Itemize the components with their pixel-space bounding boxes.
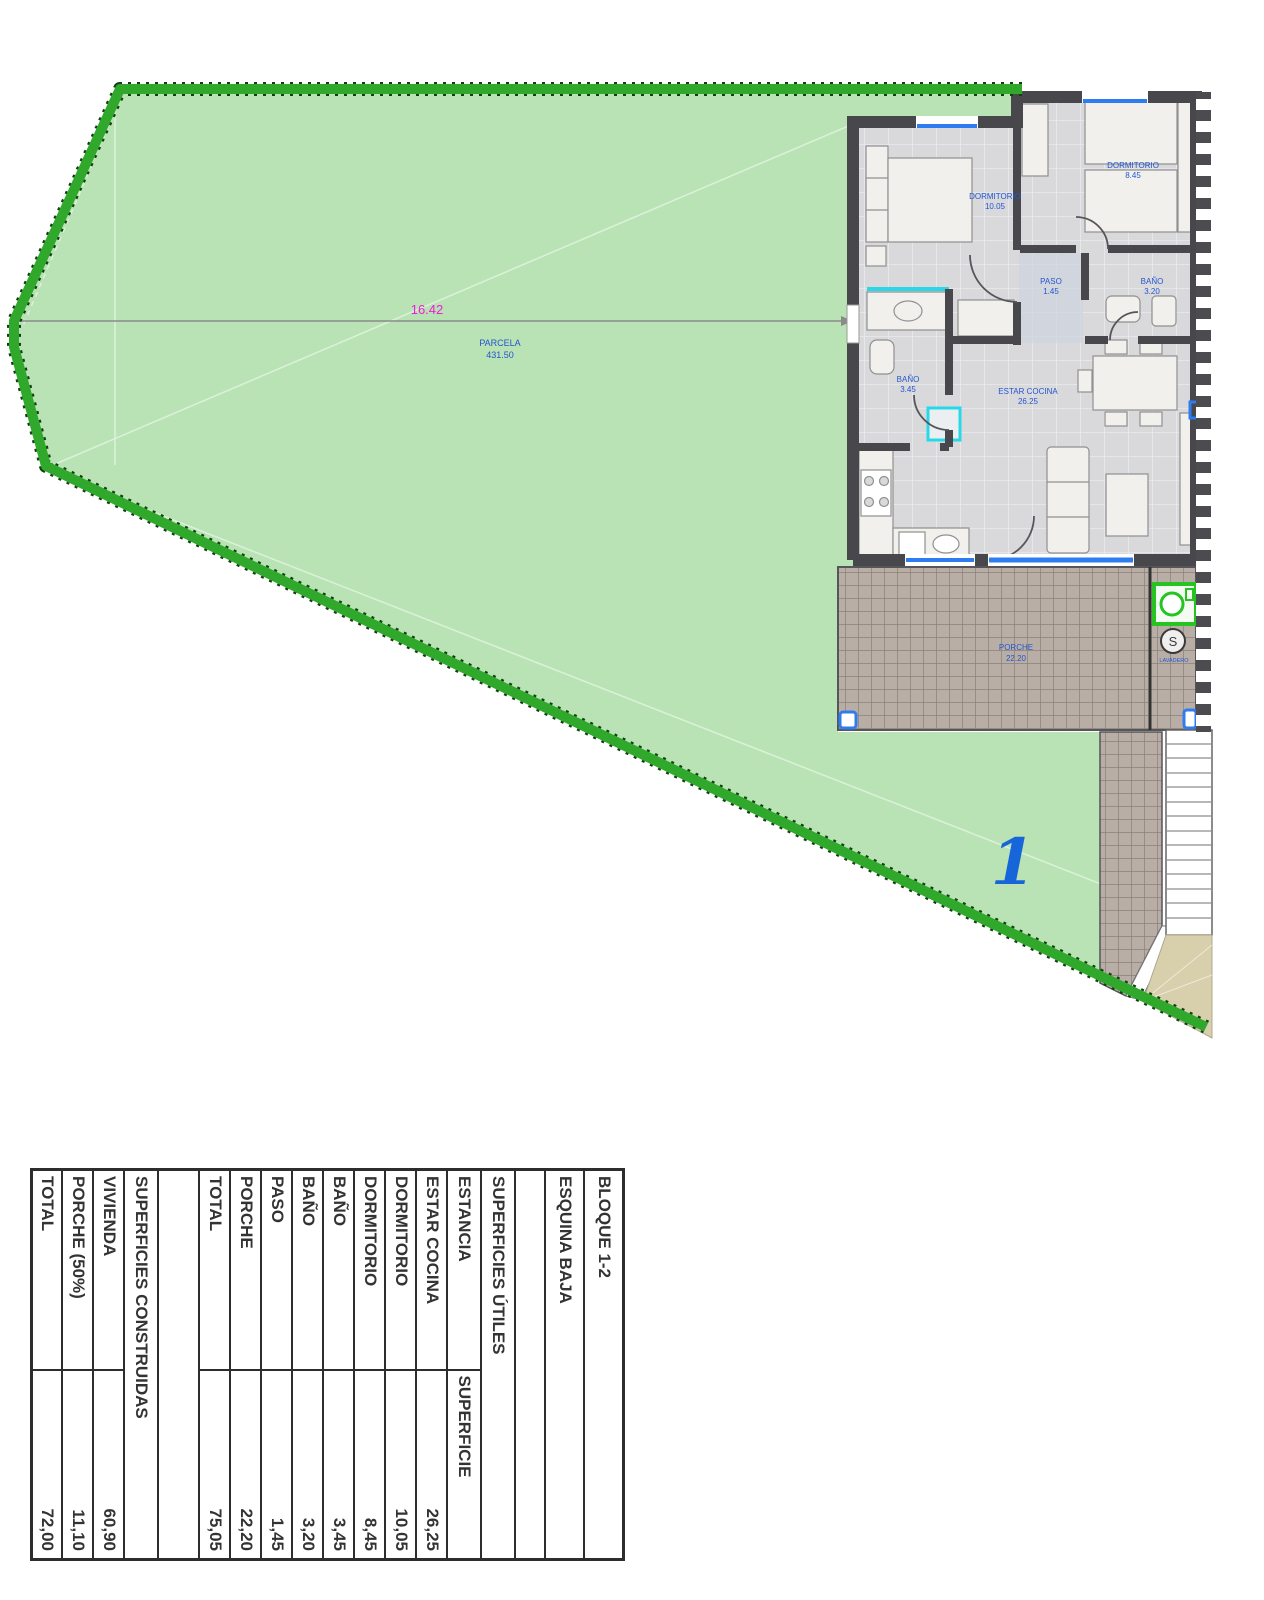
floor-plan-sheet: 16.42 PARCELA 431.50 <box>0 0 1264 1600</box>
room-label-porch: PORCHE <box>999 643 1033 652</box>
room-label-bedroom2: DORMITORIO <box>1107 161 1159 170</box>
svg-text:1.45: 1.45 <box>1043 287 1059 296</box>
table-row-total: TOTAL <box>200 1170 231 1370</box>
plot-number: 1 <box>991 825 1036 900</box>
table-row: ESTAR COCINA <box>417 1170 448 1370</box>
svg-text:26.25: 26.25 <box>1018 397 1039 406</box>
svg-text:431.50: 431.50 <box>486 350 514 360</box>
table-spacer <box>159 1170 200 1560</box>
col-header-estancia: ESTANCIA <box>448 1170 482 1370</box>
hall-floor <box>1019 253 1083 343</box>
table-row: BAÑO <box>293 1170 324 1370</box>
table-row: PASO <box>262 1170 293 1370</box>
table-section-construidas: SUPERFICIES CONSTRUIDAS <box>125 1170 159 1560</box>
areas-table: BLOQUE 1-2 ESQUINA BAJA SUPERFICIES ÚTIL… <box>30 1168 625 1558</box>
meter-icon: S <box>1161 629 1185 653</box>
table-row: VIVIENDA <box>94 1170 125 1370</box>
room-label-laundry: LAVADERO <box>1159 658 1189 664</box>
stairs <box>1166 730 1212 935</box>
svg-text:3.45: 3.45 <box>900 385 916 394</box>
porch-corner-marker <box>840 712 856 728</box>
svg-text:S: S <box>1169 634 1178 649</box>
table-row: PORCHE <box>231 1170 262 1370</box>
party-wall-hatch <box>1196 92 1211 732</box>
col-header-superficie: SUPERFICIE <box>448 1370 482 1560</box>
room-label-bath2: BAÑO <box>1141 277 1164 286</box>
table-spacer <box>516 1170 546 1560</box>
washing-machine-icon <box>1154 584 1196 624</box>
table-row: PORCHE (50%) <box>63 1170 94 1370</box>
svg-text:10.05: 10.05 <box>985 202 1006 211</box>
room-label-bedroom1: DORMITORIO <box>969 192 1021 201</box>
site-plan: 16.42 PARCELA 431.50 <box>0 0 1264 1080</box>
dimension-label: 16.42 <box>411 302 444 317</box>
room-label-living: ESTAR COCINA <box>998 387 1058 396</box>
table-row: DORMITORIO <box>386 1170 417 1370</box>
porch-corner-marker <box>1184 710 1196 728</box>
svg-text:8.45: 8.45 <box>1125 171 1141 180</box>
table-section-utiles: SUPERFICIES ÚTILES <box>482 1170 516 1560</box>
room-label-bath1: BAÑO <box>897 375 920 384</box>
table-row: DORMITORIO <box>355 1170 386 1370</box>
shower-column <box>928 408 960 440</box>
table-row-total: TOTAL <box>32 1170 63 1370</box>
table-title-esquina: ESQUINA BAJA <box>546 1170 585 1560</box>
table-row: BAÑO <box>324 1170 355 1370</box>
table-title-bloque: BLOQUE 1-2 <box>585 1170 624 1560</box>
svg-text:22.20: 22.20 <box>1006 654 1027 663</box>
svg-text:3.20: 3.20 <box>1144 287 1160 296</box>
room-label-paso: PASO <box>1040 277 1062 286</box>
svg-text:PARCELA: PARCELA <box>479 338 520 348</box>
